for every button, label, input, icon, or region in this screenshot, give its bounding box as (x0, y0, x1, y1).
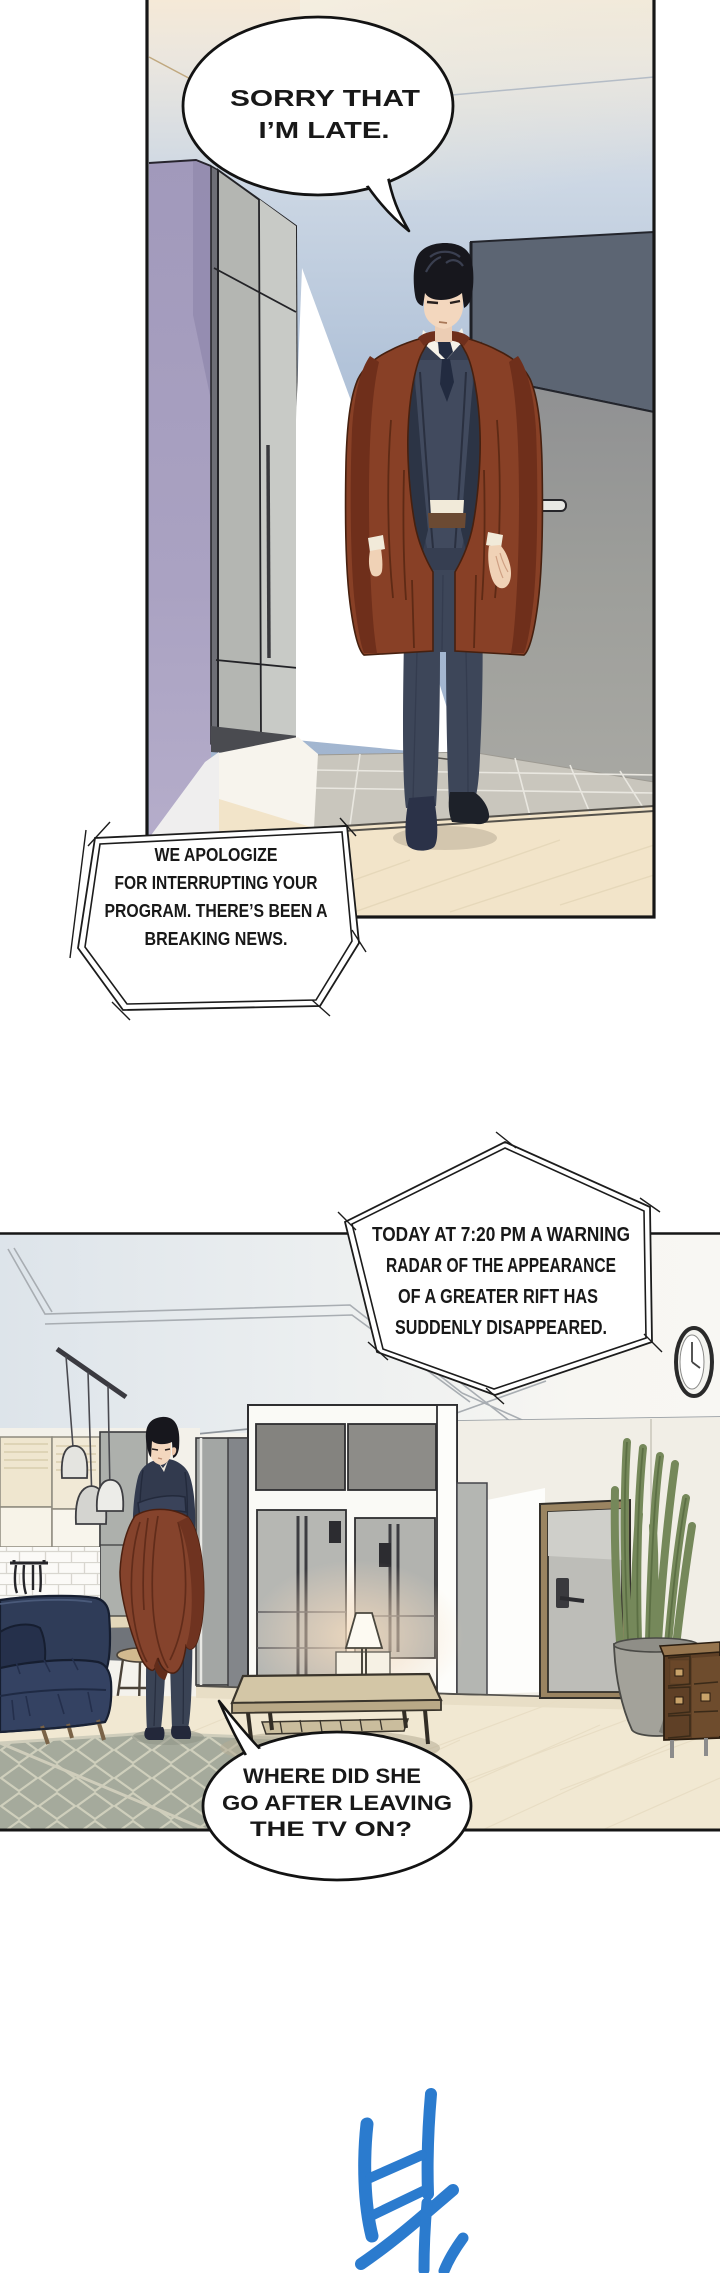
svg-text:WE APOLOGIZE: WE APOLOGIZE (155, 845, 278, 865)
svg-text:FOR INTERRUPTING YOUR: FOR INTERRUPTING YOUR (115, 873, 318, 893)
svg-text:WHERE DID SHE: WHERE DID SHE (243, 1764, 421, 1788)
svg-text:TODAY AT 7:20 PM A WARNING: TODAY AT 7:20 PM A WARNING (372, 1223, 630, 1246)
svg-text:RADAR OF THE APPEARANCE: RADAR OF THE APPEARANCE (386, 1254, 616, 1277)
svg-text:BREAKING NEWS.: BREAKING NEWS. (145, 929, 288, 949)
svg-text:I’M LATE.: I’M LATE. (259, 117, 390, 143)
svg-text:SORRY THAT: SORRY THAT (230, 85, 421, 111)
svg-text:THE TV ON?: THE TV ON? (250, 1817, 412, 1841)
svg-text:GO AFTER LEAVING: GO AFTER LEAVING (222, 1791, 452, 1815)
svg-text:SUDDENLY DISAPPEARED.: SUDDENLY DISAPPEARED. (395, 1316, 607, 1339)
svg-text:PROGRAM. THERE’S BEEN A: PROGRAM. THERE’S BEEN A (105, 901, 328, 921)
svg-text:OF A GREATER RIFT HAS: OF A GREATER RIFT HAS (398, 1285, 598, 1308)
